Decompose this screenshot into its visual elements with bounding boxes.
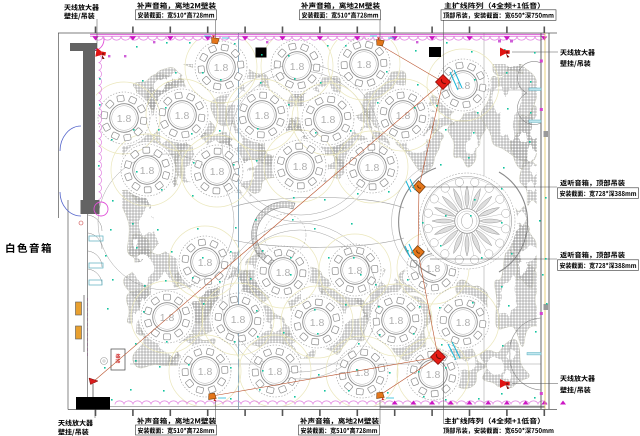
svg-text:1.8: 1.8 [321, 114, 336, 126]
svg-text:1.8: 1.8 [276, 267, 291, 279]
svg-text:1.8: 1.8 [140, 165, 155, 177]
svg-text:1.8: 1.8 [365, 162, 380, 174]
svg-text:1.8: 1.8 [290, 61, 305, 73]
svg-text:1.8: 1.8 [293, 161, 308, 173]
svg-text:1.8: 1.8 [357, 59, 372, 71]
svg-text:1.8: 1.8 [117, 113, 132, 125]
svg-text:1.8: 1.8 [175, 110, 190, 122]
svg-text:1.8: 1.8 [456, 317, 471, 329]
svg-text:1.8: 1.8 [310, 317, 325, 329]
svg-text:1.8: 1.8 [255, 110, 270, 122]
svg-text:1.8: 1.8 [198, 366, 213, 378]
svg-text:1.8: 1.8 [268, 366, 283, 378]
svg-text:1.8: 1.8 [355, 367, 370, 379]
svg-text:1.8: 1.8 [389, 315, 404, 327]
svg-text:1.8: 1.8 [214, 62, 229, 74]
svg-text:1.8: 1.8 [426, 369, 441, 381]
svg-text:1.8: 1.8 [231, 314, 246, 326]
svg-text:1.8: 1.8 [210, 166, 225, 178]
svg-text:1.8: 1.8 [198, 257, 213, 269]
